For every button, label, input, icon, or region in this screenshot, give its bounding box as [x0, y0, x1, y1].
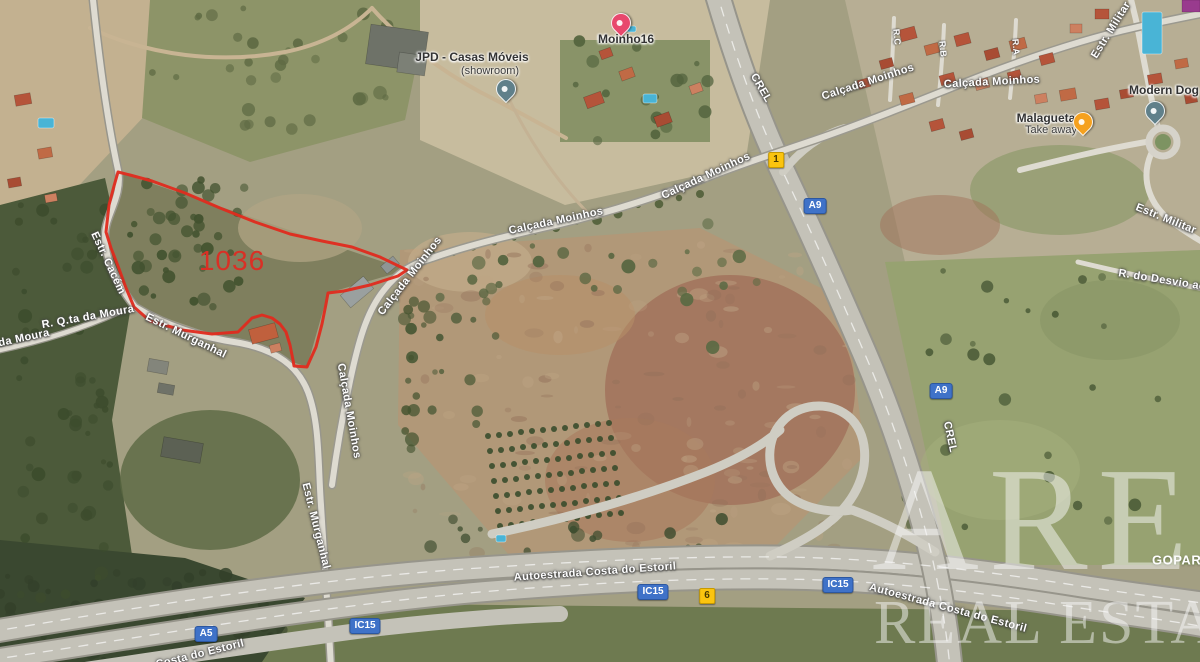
satellite-map-view[interactable]: JPD - Casas Móveis(showroom)Moinho16Mode… [0, 0, 1200, 662]
satellite-imagery[interactable] [0, 0, 1200, 662]
